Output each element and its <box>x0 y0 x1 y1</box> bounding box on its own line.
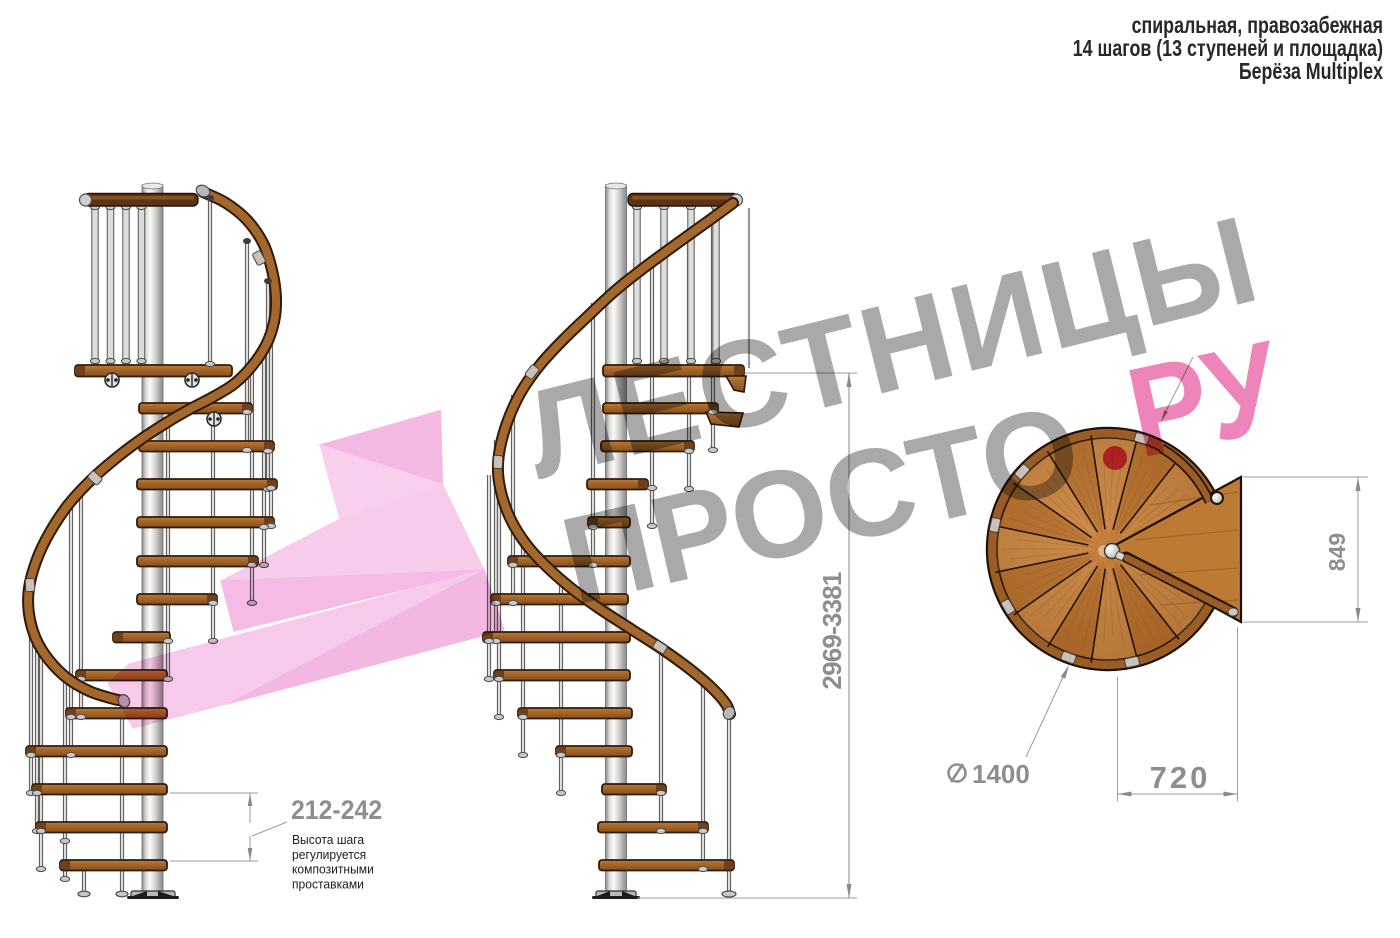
svg-text:Берёза Multiplex: Берёза Multiplex <box>1239 59 1384 85</box>
svg-text:спиральная, правозабежная: спиральная, правозабежная <box>1132 13 1383 39</box>
svg-text:849: 849 <box>1324 533 1350 571</box>
svg-text:Высота шагарегулируетсякомпози: Высота шагарегулируетсякомпозитнымипрост… <box>292 833 374 892</box>
svg-text:212-242: 212-242 <box>291 796 382 825</box>
svg-text:14 шагов (13 ступеней и площад: 14 шагов (13 ступеней и площадка) <box>1073 36 1383 62</box>
svg-text:2969-3381: 2969-3381 <box>817 572 847 689</box>
svg-text:720: 720 <box>1150 760 1211 795</box>
svg-text:1400: 1400 <box>972 759 1030 789</box>
